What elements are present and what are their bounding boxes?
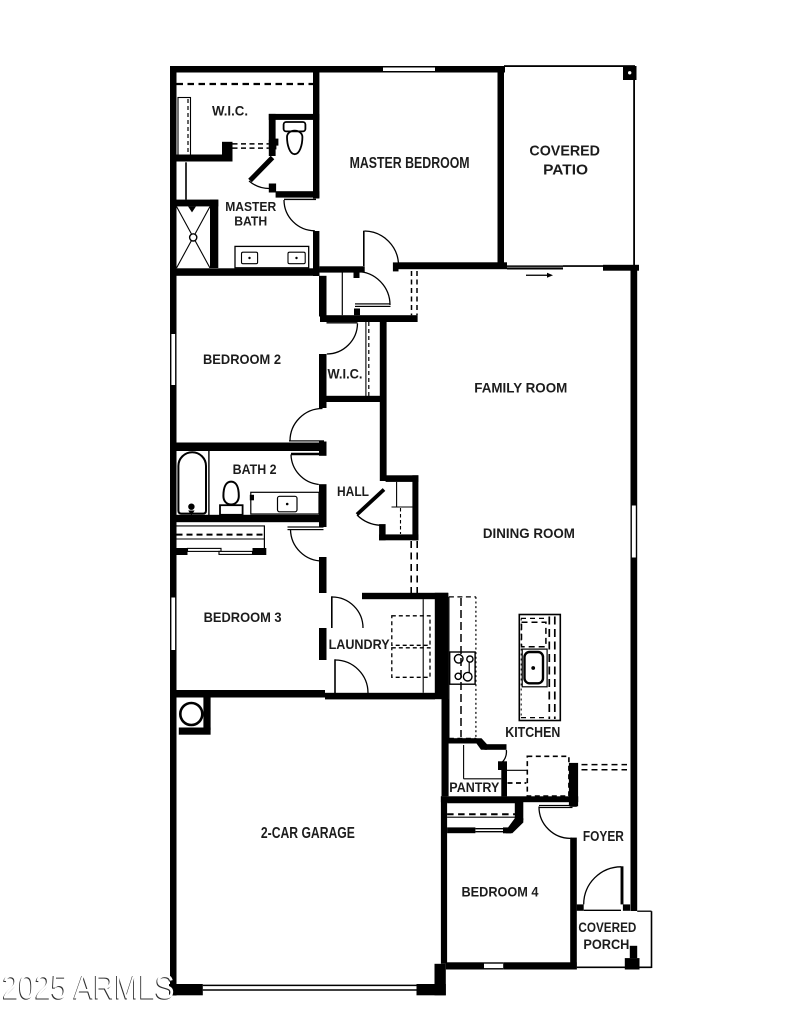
svg-text:PATIO: PATIO xyxy=(543,161,588,178)
svg-text:BEDROOM 4: BEDROOM 4 xyxy=(462,883,539,899)
svg-text:MASTER: MASTER xyxy=(225,199,276,214)
svg-text:BEDROOM 2: BEDROOM 2 xyxy=(203,351,281,367)
svg-text:BATH: BATH xyxy=(234,214,267,229)
svg-text:BATH 2: BATH 2 xyxy=(233,462,277,477)
svg-text:DINING ROOM: DINING ROOM xyxy=(483,525,575,541)
svg-text:KITCHEN: KITCHEN xyxy=(505,724,560,741)
svg-text:HALL: HALL xyxy=(337,484,369,499)
svg-text:BEDROOM 3: BEDROOM 3 xyxy=(204,609,282,625)
svg-text:FOYER: FOYER xyxy=(583,829,624,845)
svg-text:COVERED: COVERED xyxy=(529,143,600,160)
svg-text:W.I.C.: W.I.C. xyxy=(328,366,363,382)
svg-text:2025 ARMLS: 2025 ARMLS xyxy=(3,968,175,1006)
svg-text:COVERED: COVERED xyxy=(578,920,636,935)
svg-text:MASTER BEDROOM: MASTER BEDROOM xyxy=(350,155,470,172)
svg-text:LAUNDRY: LAUNDRY xyxy=(329,636,391,652)
svg-text:2-CAR GARAGE: 2-CAR GARAGE xyxy=(261,825,355,842)
svg-text:PORCH: PORCH xyxy=(583,937,629,952)
svg-text:W.I.C.: W.I.C. xyxy=(212,102,248,118)
svg-text:PANTRY: PANTRY xyxy=(449,780,499,795)
svg-text:FAMILY ROOM: FAMILY ROOM xyxy=(474,380,567,396)
